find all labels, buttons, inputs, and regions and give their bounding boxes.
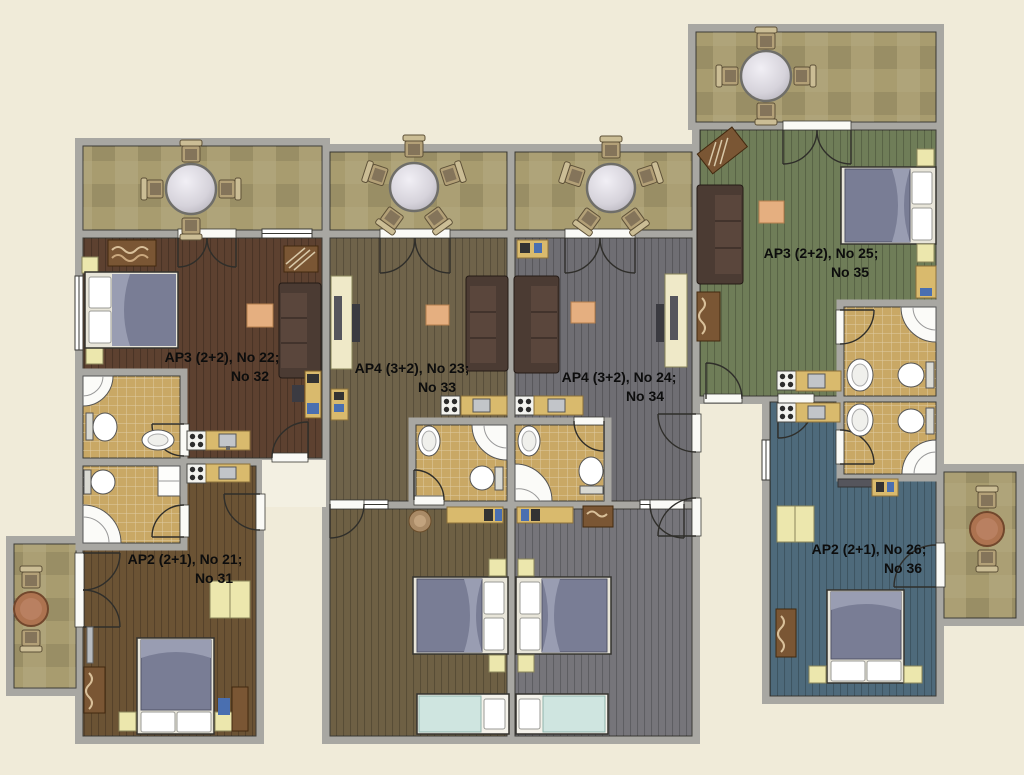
door-opening bbox=[692, 498, 701, 536]
sink bbox=[847, 359, 873, 391]
chair bbox=[716, 65, 738, 87]
sink bbox=[142, 430, 174, 450]
desk bbox=[447, 507, 503, 523]
chair bbox=[600, 136, 622, 158]
toilet bbox=[84, 470, 115, 494]
nightstand bbox=[904, 666, 922, 683]
stove bbox=[187, 431, 206, 450]
pillow bbox=[141, 712, 175, 732]
kitchen-sink bbox=[473, 399, 490, 412]
kitchen-sink bbox=[808, 374, 825, 388]
toilet bbox=[86, 413, 117, 441]
stove bbox=[777, 371, 796, 390]
door-opening bbox=[836, 310, 844, 344]
kitchen-sink bbox=[219, 467, 236, 479]
pillow bbox=[520, 582, 540, 614]
sofa-cushions bbox=[470, 286, 496, 363]
chair bbox=[180, 218, 202, 240]
cabinet bbox=[517, 240, 548, 258]
sofa-cushions bbox=[715, 195, 741, 274]
chair bbox=[976, 486, 998, 508]
door-opening bbox=[330, 500, 364, 509]
stove bbox=[777, 403, 796, 422]
stove bbox=[515, 396, 534, 415]
double-bed bbox=[827, 590, 904, 683]
door-opening bbox=[704, 394, 742, 403]
door-opening bbox=[414, 496, 444, 505]
kitchen-sink bbox=[548, 399, 565, 412]
sink bbox=[518, 426, 540, 456]
label-ap26-line2: No 36 bbox=[884, 560, 922, 576]
chair bbox=[20, 566, 42, 588]
window bbox=[762, 440, 770, 480]
door-opening bbox=[783, 121, 851, 130]
round-table bbox=[390, 163, 438, 211]
kitchenette bbox=[777, 403, 840, 422]
chair bbox=[20, 630, 42, 652]
floor-plan-page: AP3 (2+2), No 22; No 32 AP4 (3+2), No 23… bbox=[0, 0, 1024, 775]
dresser bbox=[776, 609, 796, 657]
nightstand bbox=[119, 712, 136, 731]
chair bbox=[180, 140, 202, 162]
kitchen-sink bbox=[808, 406, 825, 419]
dresser bbox=[108, 240, 156, 266]
double-bed bbox=[85, 272, 178, 348]
label-ap25-line1: AP3 (2+2), No 25; bbox=[764, 245, 879, 261]
door-opening bbox=[778, 394, 814, 403]
door-opening bbox=[256, 494, 265, 530]
nightstand bbox=[518, 559, 534, 576]
desk-chair bbox=[218, 698, 230, 715]
shower-stall bbox=[158, 466, 180, 496]
table-top bbox=[20, 598, 42, 620]
desk-chair bbox=[292, 385, 304, 402]
pillow bbox=[912, 208, 932, 240]
kitchenette bbox=[777, 371, 841, 391]
coffee-table bbox=[247, 304, 273, 327]
label-ap22-line2: No 32 bbox=[231, 368, 269, 384]
door-opening bbox=[836, 430, 844, 464]
sofa-cushions bbox=[281, 293, 307, 368]
toilet bbox=[470, 466, 503, 490]
nightstand bbox=[82, 257, 98, 273]
pillow bbox=[519, 699, 540, 729]
label-ap21-line2: No 31 bbox=[195, 570, 233, 586]
door-opening bbox=[936, 543, 945, 587]
entrance-porch bbox=[262, 460, 326, 507]
round-table bbox=[587, 164, 635, 212]
wardrobe bbox=[210, 581, 250, 618]
door-opening bbox=[565, 229, 635, 238]
sofa bbox=[466, 276, 508, 371]
pillow bbox=[484, 582, 504, 614]
chair bbox=[403, 135, 425, 157]
nightstand bbox=[86, 348, 103, 364]
desk-chair bbox=[352, 304, 360, 342]
pillow bbox=[89, 311, 111, 343]
kitchenette bbox=[187, 431, 250, 450]
toilet bbox=[898, 408, 934, 434]
double-bed bbox=[516, 577, 611, 654]
dresser bbox=[583, 506, 613, 527]
pillow bbox=[912, 172, 932, 204]
faucet bbox=[226, 446, 230, 450]
stove bbox=[187, 464, 206, 483]
sofa-cushions bbox=[531, 286, 557, 363]
kitchenette bbox=[515, 396, 583, 415]
sofa bbox=[279, 283, 321, 378]
toilet bbox=[898, 362, 934, 388]
single-bed bbox=[516, 694, 608, 734]
desk bbox=[916, 266, 936, 298]
floor-plan: AP3 (2+2), No 22; No 32 AP4 (3+2), No 23… bbox=[0, 0, 1024, 775]
label-ap21-line1: AP2 (2+1), No 21; bbox=[128, 551, 243, 567]
door-opening bbox=[180, 505, 189, 537]
label-ap24-line2: No 34 bbox=[626, 388, 664, 404]
blanket bbox=[543, 696, 605, 732]
label-ap24-line1: AP4 (3+2), No 24; bbox=[562, 369, 677, 385]
sink bbox=[847, 404, 873, 436]
kitchen-sink bbox=[219, 434, 236, 447]
table-top bbox=[976, 518, 998, 540]
coffee-table bbox=[571, 302, 595, 323]
round-table bbox=[166, 164, 216, 214]
window bbox=[75, 276, 83, 350]
mirror bbox=[87, 627, 93, 663]
chair bbox=[976, 550, 998, 572]
door-opening bbox=[272, 453, 308, 462]
door-opening bbox=[574, 417, 604, 425]
nightstand bbox=[518, 655, 534, 672]
toilet bbox=[579, 457, 603, 494]
stool bbox=[409, 510, 431, 532]
nightstand bbox=[917, 149, 934, 166]
single-bed bbox=[417, 694, 509, 734]
pillow bbox=[484, 618, 504, 650]
stove bbox=[441, 396, 460, 415]
nightstand bbox=[489, 655, 505, 672]
label-ap22-line1: AP3 (2+2), No 22; bbox=[165, 349, 280, 365]
double-bed bbox=[841, 167, 936, 244]
label-ap26-line1: AP2 (2+1), No 26; bbox=[812, 541, 927, 557]
nightstand bbox=[917, 244, 934, 262]
chair bbox=[794, 65, 816, 87]
bookshelf bbox=[284, 246, 318, 272]
kitchenette bbox=[187, 464, 250, 483]
nightstand bbox=[809, 666, 826, 683]
sink bbox=[418, 426, 440, 456]
pillow bbox=[831, 661, 865, 681]
nightstand bbox=[489, 559, 506, 576]
chair bbox=[219, 178, 241, 200]
label-ap23-line2: No 33 bbox=[418, 379, 456, 395]
label-ap23-line1: AP4 (3+2), No 23; bbox=[355, 360, 470, 376]
pillow bbox=[867, 661, 901, 681]
kitchenette bbox=[441, 396, 507, 415]
wardrobe bbox=[777, 506, 814, 542]
chair bbox=[141, 178, 163, 200]
coffee-table bbox=[759, 201, 784, 223]
desk-chair bbox=[656, 304, 664, 342]
double-bed bbox=[413, 577, 508, 654]
sofa bbox=[514, 276, 559, 373]
door-opening bbox=[692, 414, 701, 452]
label-ap25-line2: No 35 bbox=[831, 264, 869, 280]
desk bbox=[517, 507, 573, 523]
pillow bbox=[177, 712, 211, 732]
window bbox=[262, 229, 312, 238]
blanket bbox=[419, 696, 481, 732]
pillow bbox=[484, 699, 505, 729]
dresser bbox=[697, 292, 720, 341]
door-opening bbox=[75, 553, 84, 627]
chair bbox=[755, 103, 777, 125]
round-table bbox=[741, 51, 791, 101]
cabinet bbox=[331, 389, 348, 420]
chair bbox=[755, 27, 777, 49]
sofa bbox=[697, 185, 743, 284]
pillow bbox=[520, 618, 540, 650]
pillow bbox=[89, 277, 111, 308]
coffee-table bbox=[426, 305, 449, 325]
double-bed bbox=[137, 638, 214, 734]
dresser bbox=[84, 667, 105, 713]
